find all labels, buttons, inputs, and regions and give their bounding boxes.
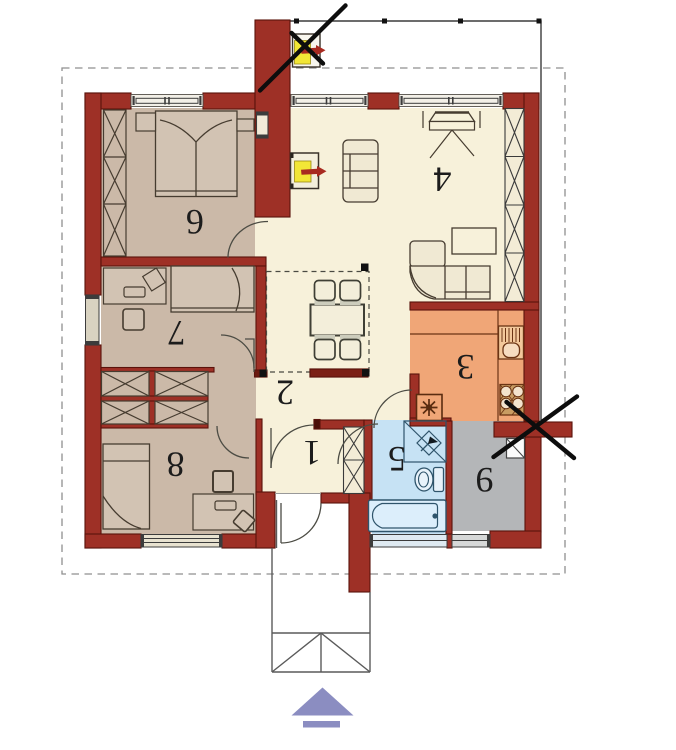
svg-text:6: 6 <box>186 202 204 242</box>
svg-text:8: 8 <box>167 445 185 485</box>
svg-text:4: 4 <box>434 160 452 200</box>
svg-text:3: 3 <box>457 347 475 387</box>
svg-text:7: 7 <box>168 313 186 353</box>
svg-text:9: 9 <box>476 460 494 500</box>
svg-text:1: 1 <box>303 433 321 473</box>
svg-text:5: 5 <box>388 439 406 479</box>
svg-text:2: 2 <box>276 373 294 413</box>
